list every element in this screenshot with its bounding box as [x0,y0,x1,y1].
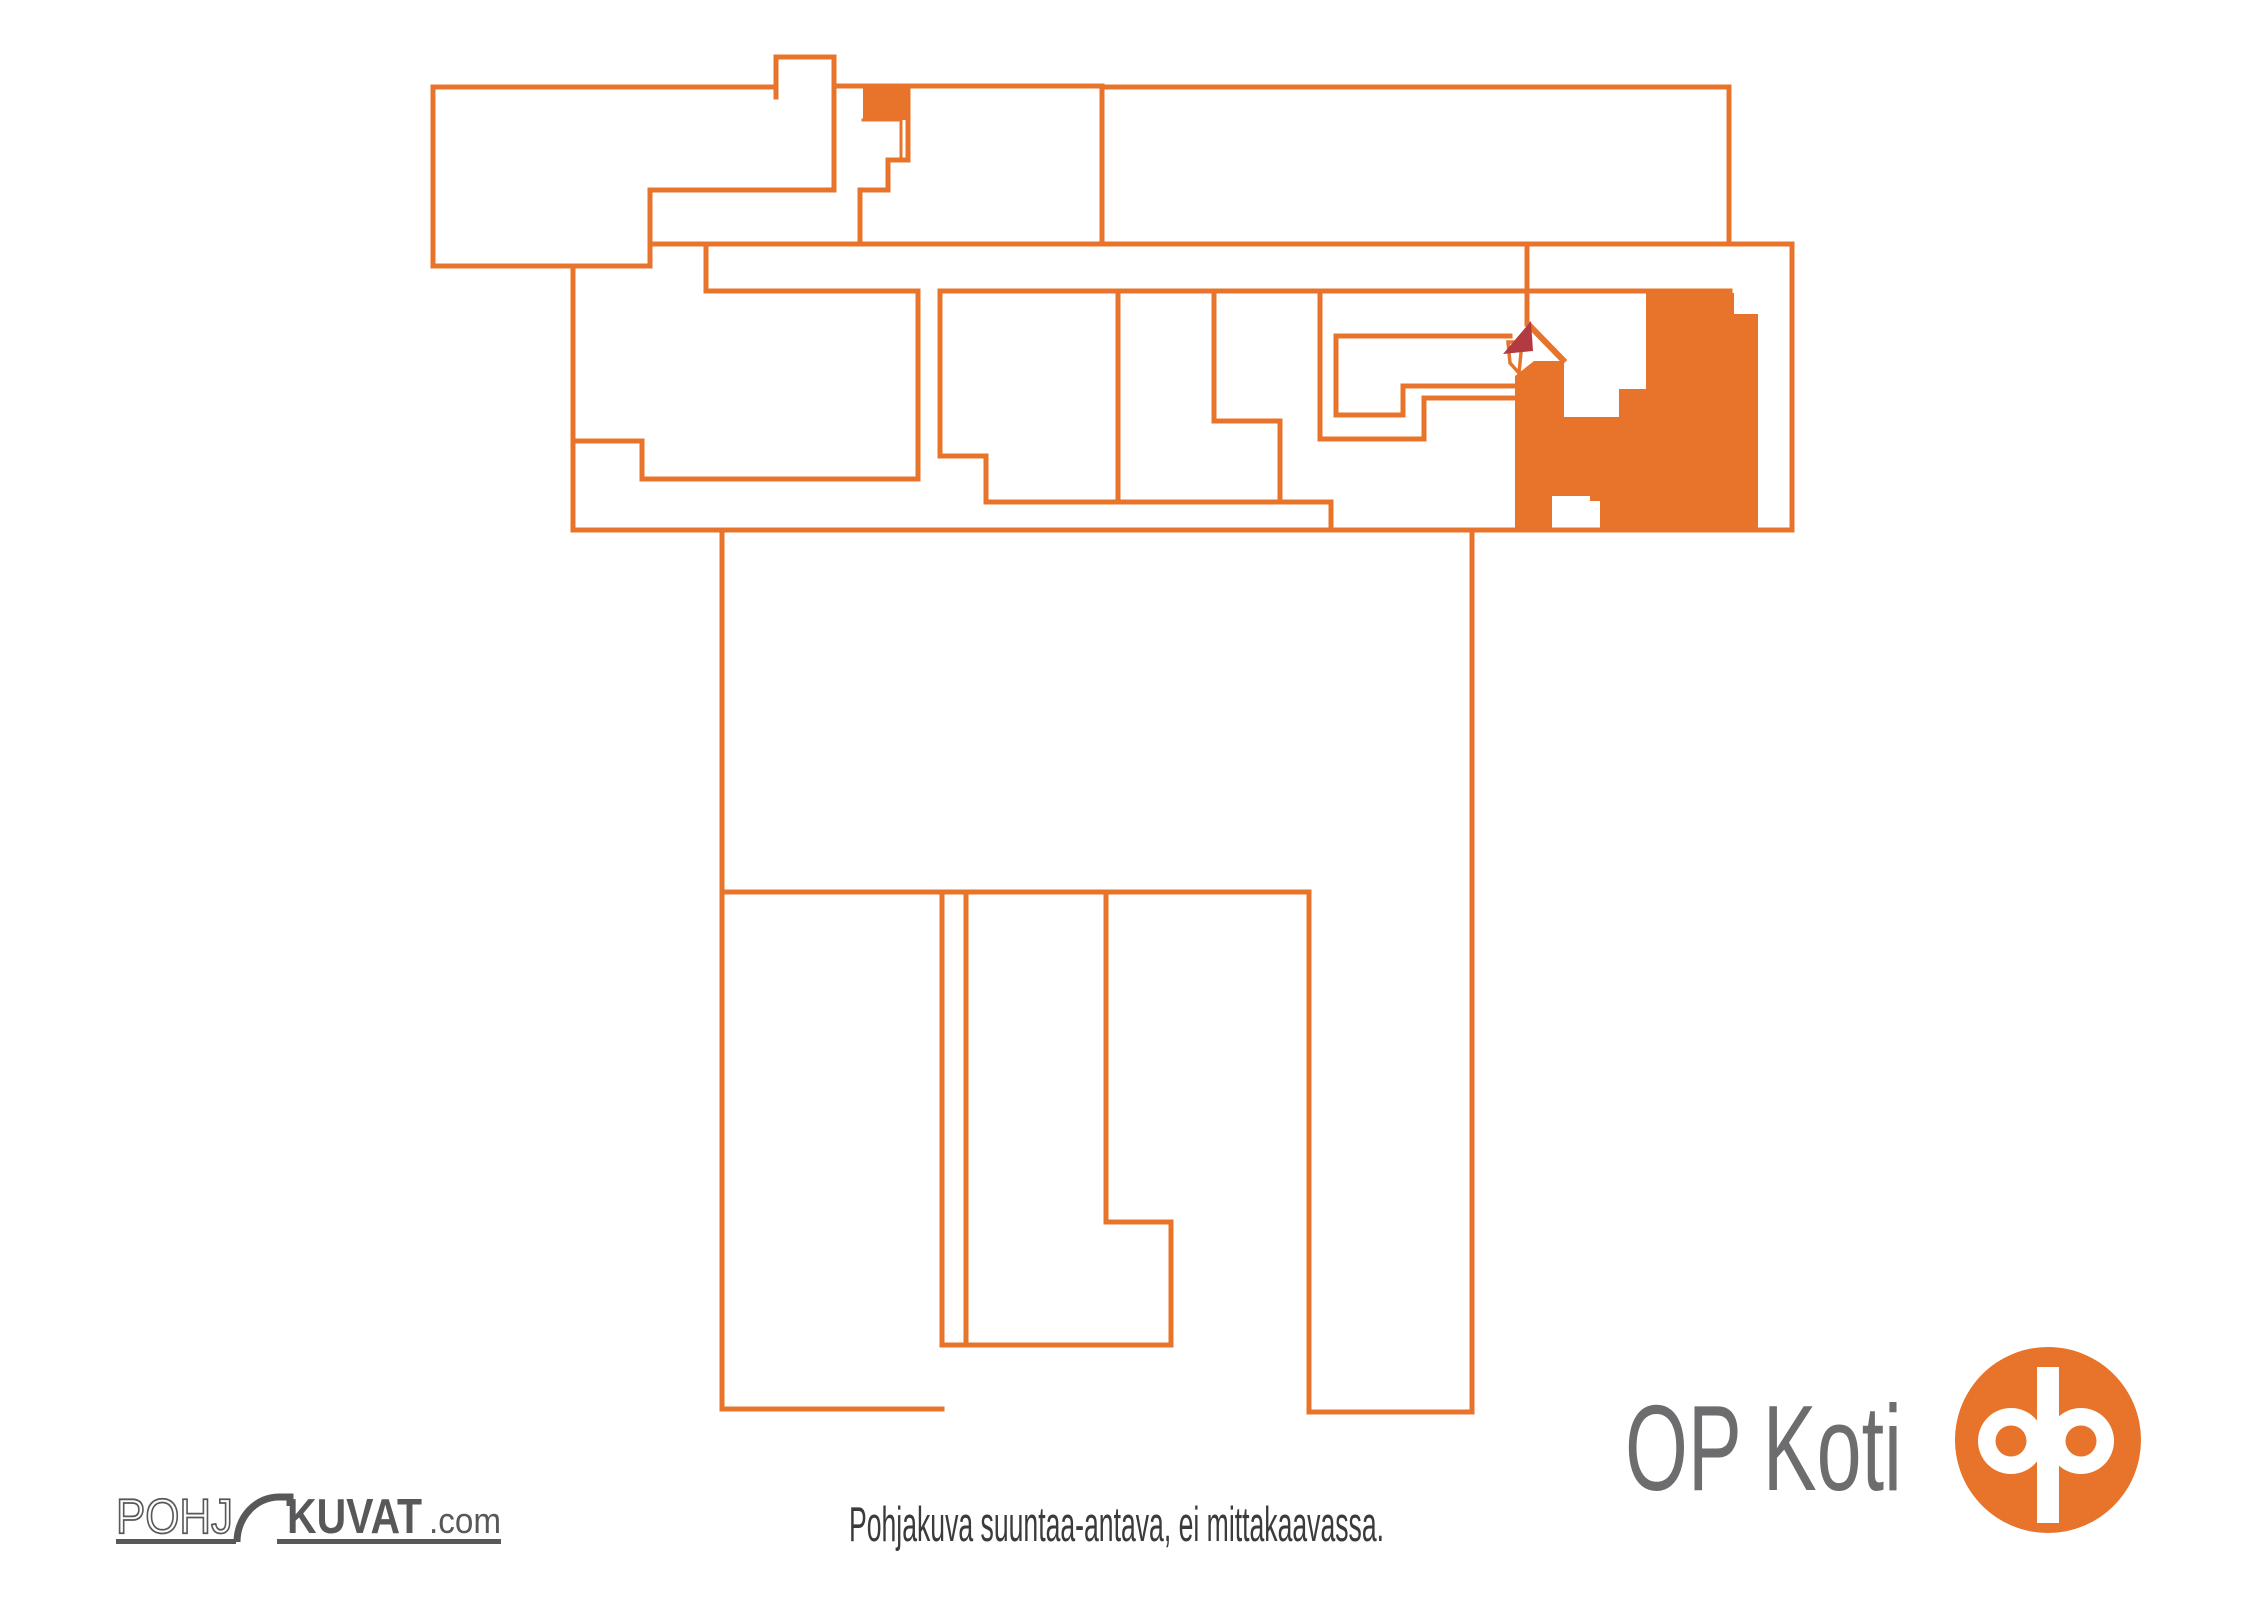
svg-text:OP Koti: OP Koti [1625,1380,1902,1516]
svg-text:.com: .com [429,1500,501,1541]
svg-text:Pohjakuva suuntaa-antava, ei m: Pohjakuva suuntaa-antava, ei mittakaavas… [849,1498,1384,1552]
svg-text:POHJ: POHJ [116,1490,233,1544]
svg-text:KUVAT: KUVAT [287,1490,422,1544]
